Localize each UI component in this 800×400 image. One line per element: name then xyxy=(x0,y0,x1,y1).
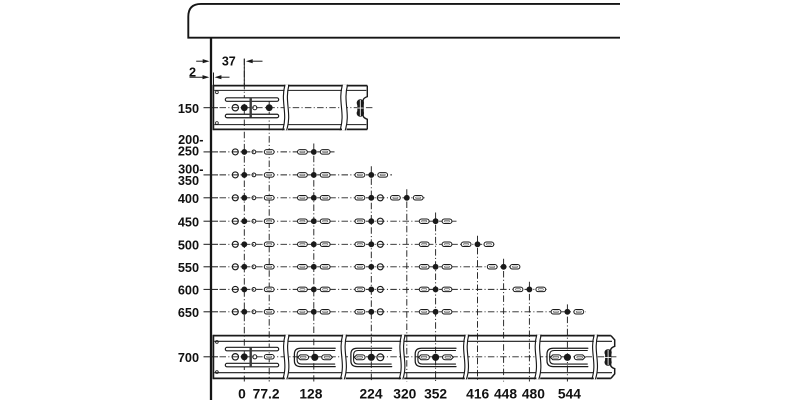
svg-text:77.2: 77.2 xyxy=(253,386,280,400)
svg-text:37: 37 xyxy=(222,54,236,68)
svg-text:400: 400 xyxy=(178,192,199,206)
svg-text:650: 650 xyxy=(178,306,199,320)
svg-text:320: 320 xyxy=(393,386,416,400)
svg-text:150: 150 xyxy=(178,102,199,116)
svg-text:480: 480 xyxy=(522,386,545,400)
svg-text:448: 448 xyxy=(494,386,517,400)
svg-text:250: 250 xyxy=(178,145,199,159)
svg-text:500: 500 xyxy=(178,238,199,252)
svg-text:128: 128 xyxy=(299,386,322,400)
svg-text:450: 450 xyxy=(178,215,199,229)
svg-text:600: 600 xyxy=(178,284,199,298)
svg-text:0: 0 xyxy=(238,386,246,400)
svg-text:224: 224 xyxy=(359,386,382,400)
svg-text:350: 350 xyxy=(178,174,199,188)
svg-text:550: 550 xyxy=(178,261,199,275)
svg-text:544: 544 xyxy=(558,386,581,400)
svg-text:416: 416 xyxy=(466,386,489,400)
svg-text:700: 700 xyxy=(178,351,199,365)
svg-text:352: 352 xyxy=(424,386,447,400)
